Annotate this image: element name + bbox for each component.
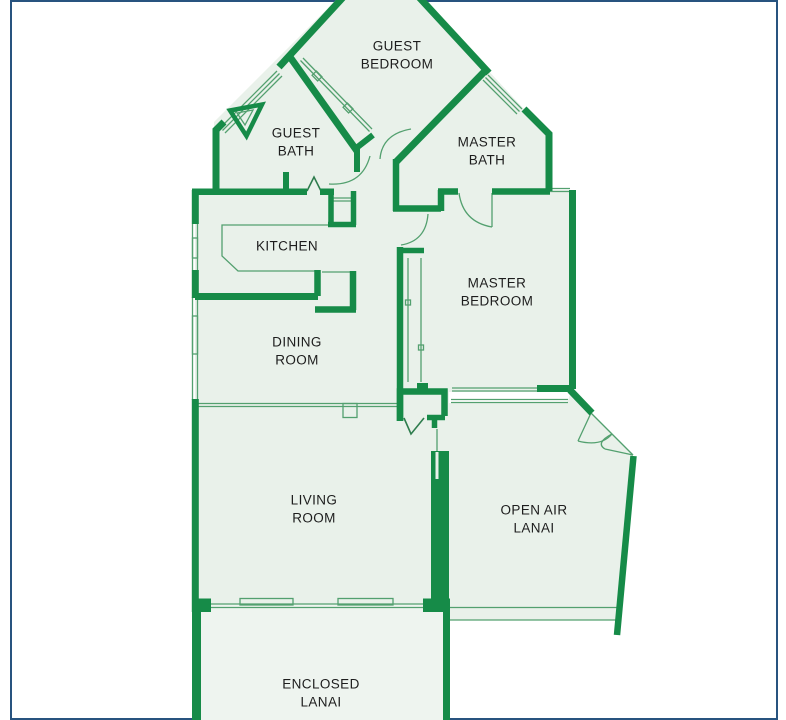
- room-label-dining-room: DINING ROOM: [272, 334, 322, 369]
- wall-living-lanai-divider: [431, 451, 449, 602]
- room-label-kitchen: KITCHEN: [256, 237, 318, 255]
- lanai-top-edge: [451, 400, 568, 403]
- room-label-living-room: LIVING ROOM: [291, 492, 338, 527]
- divider-bar-stripe: [436, 452, 439, 479]
- room-label-guest-bedroom: GUEST BEDROOM: [361, 38, 434, 73]
- wall-living-bottom-left-block: [192, 599, 211, 613]
- floor-plan-page: { "plan": { "type": "condo-floor-plan", …: [0, 0, 786, 720]
- room-label-enclosed-lanai: ENCLOSED LANAI: [282, 676, 359, 711]
- room-label-guest-bath: GUEST BATH: [272, 125, 321, 160]
- wall-master-left-tick: [417, 383, 428, 389]
- room-label-master-bath: MASTER BATH: [458, 134, 517, 169]
- room-label-master-bedroom: MASTER BEDROOM: [461, 275, 534, 310]
- room-label-open-air-lanai: OPEN AIR LANAI: [501, 502, 568, 537]
- floor-plan-svg: [0, 0, 786, 720]
